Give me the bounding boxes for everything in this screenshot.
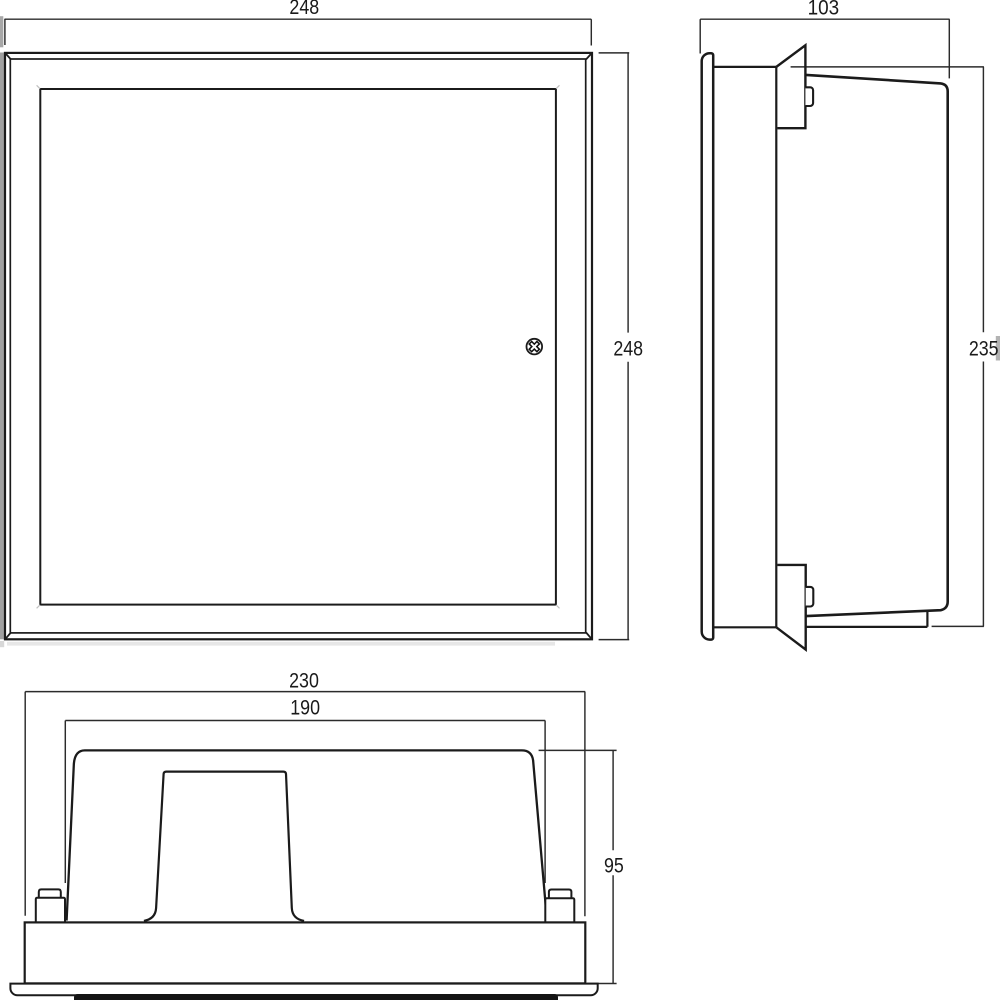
svg-text:230: 230 — [289, 669, 319, 693]
svg-text:190: 190 — [290, 696, 320, 720]
svg-text:248: 248 — [613, 337, 643, 361]
svg-text:248: 248 — [289, 0, 319, 19]
svg-text:235: 235 — [969, 337, 999, 361]
svg-text:103: 103 — [808, 0, 840, 20]
svg-text:95: 95 — [604, 854, 624, 878]
